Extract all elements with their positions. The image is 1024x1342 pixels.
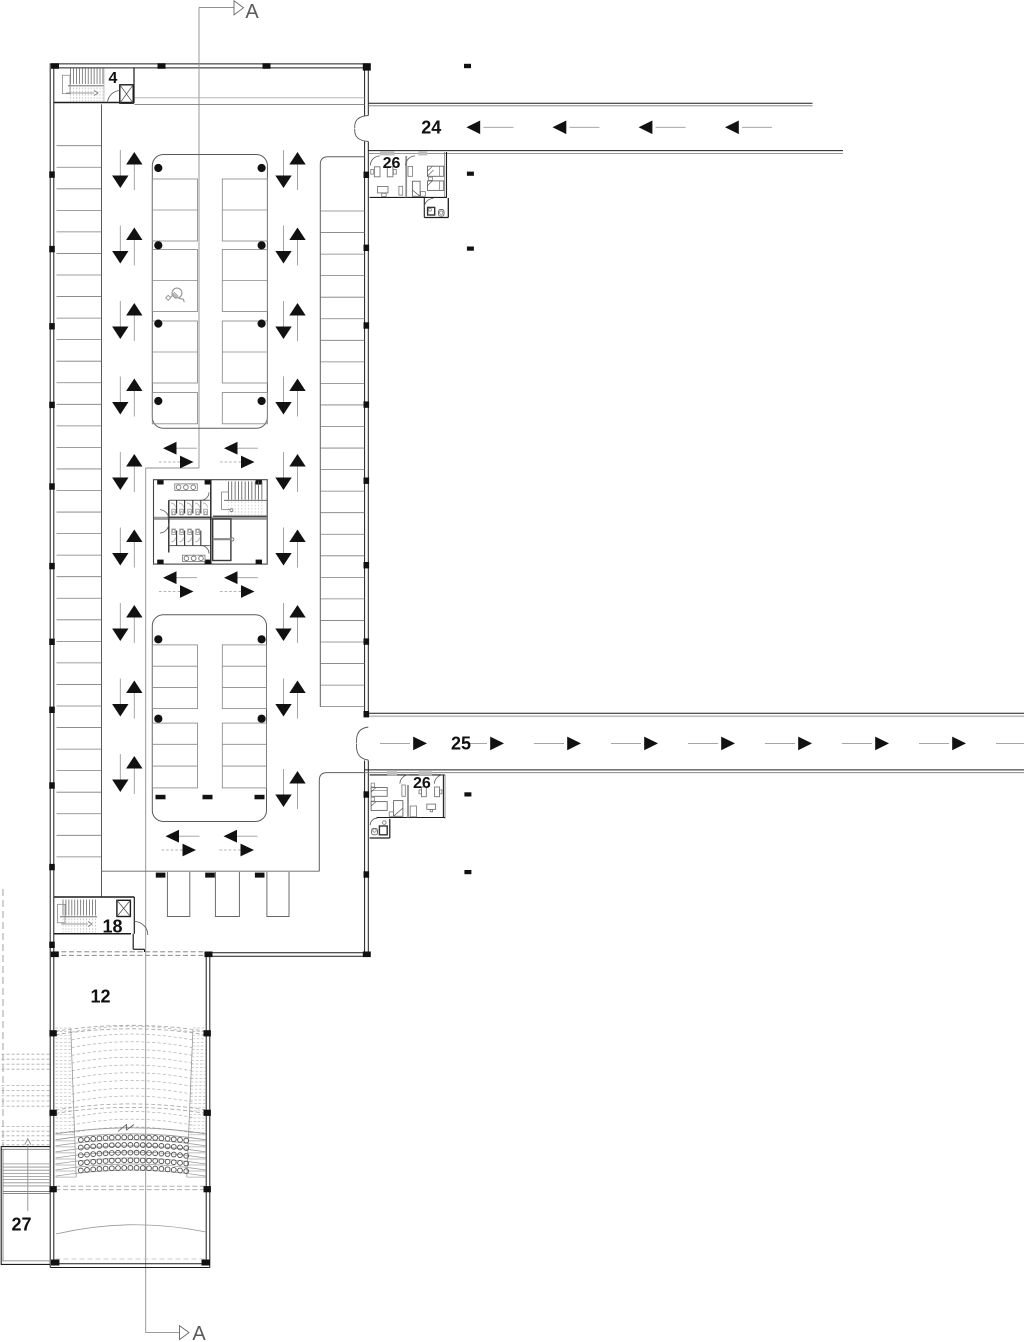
svg-text:A: A [192, 1323, 206, 1342]
svg-text:A: A [245, 1, 259, 23]
svg-text:27: 27 [11, 1215, 31, 1235]
svg-text:26: 26 [383, 155, 401, 172]
svg-text:4: 4 [109, 70, 118, 87]
svg-text:24: 24 [421, 118, 441, 138]
svg-text:26: 26 [413, 775, 431, 792]
svg-text:18: 18 [102, 916, 122, 936]
svg-text:12: 12 [90, 987, 110, 1007]
svg-text:25: 25 [451, 734, 471, 754]
